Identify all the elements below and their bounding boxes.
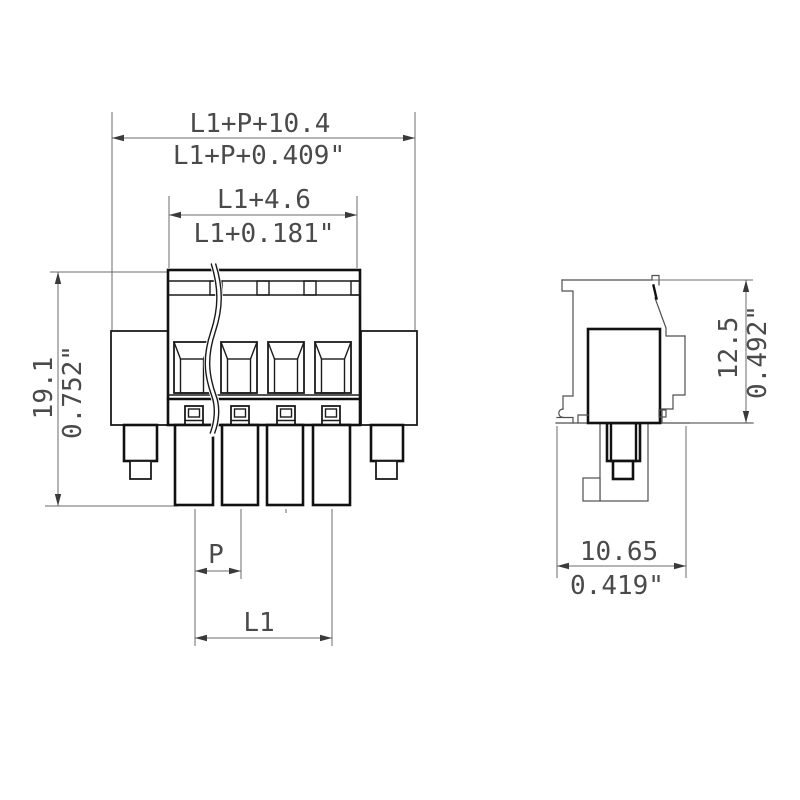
pin-3 — [267, 425, 303, 505]
side-view: 12.5 0.492" 10.65 0.419" — [556, 276, 773, 602]
dim-length: L1 — [195, 509, 332, 646]
dim-inner-width-inch-label: L1+0.181" — [194, 219, 335, 249]
dim-length-label: L1 — [243, 608, 274, 638]
funnel-outer — [268, 342, 304, 393]
funnel-3 — [268, 342, 304, 393]
latch-mark — [654, 286, 657, 299]
arrowhead-left — [195, 568, 207, 574]
pin-1 — [175, 425, 213, 505]
mounting-foot — [371, 425, 403, 461]
arrowhead-right — [320, 635, 332, 641]
left-wall — [562, 280, 573, 409]
drawing-canvas: L1+P+10.4 L1+P+0.409" L1+4.6 L1+0.181" 1… — [0, 0, 800, 800]
clamp-window-1 — [185, 406, 203, 425]
funnel-4 — [315, 342, 351, 393]
funnel-2 — [221, 342, 257, 393]
arrowhead-right — [345, 212, 357, 218]
clamp-window-2 — [231, 406, 249, 425]
pin-4 — [313, 425, 350, 505]
arrowhead-top — [743, 280, 749, 292]
dim-inner-width: L1+4.6 L1+0.181" — [169, 185, 357, 268]
clamp-window-3 — [277, 406, 295, 425]
mounting-foot-tip — [376, 461, 397, 479]
front-view: L1+P+10.4 L1+P+0.409" L1+4.6 L1+0.181" 1… — [29, 109, 417, 646]
dim-inner-width-mm-label: L1+4.6 — [217, 185, 311, 215]
plug-body — [578, 286, 666, 424]
dim-side-height-mm-label: 12.5 — [714, 317, 744, 380]
dim-overall-width-mm-label: L1+P+10.4 — [190, 109, 331, 139]
funnel-outer — [315, 342, 351, 393]
arrowhead-right — [674, 563, 686, 569]
side-lower-housing — [583, 423, 648, 501]
arrowhead-right — [403, 135, 415, 141]
dim-side-height-inch-label: 0.492" — [743, 305, 773, 399]
pin-2 — [222, 425, 258, 505]
plug-step — [578, 415, 588, 423]
arrowhead-left — [195, 635, 207, 641]
arrowhead-left — [169, 212, 181, 218]
mounting-foot-tip — [130, 461, 151, 479]
arrowhead-bottom — [55, 494, 61, 506]
dim-side-height: 12.5 0.492" — [652, 280, 773, 423]
left-hook — [559, 409, 563, 417]
dim-front-height-mm-label: 19.1 — [29, 357, 59, 420]
flange-body — [111, 331, 168, 425]
clamp-window-4 — [322, 406, 340, 425]
side-tab — [583, 478, 600, 501]
dim-pitch-label: P — [208, 540, 224, 570]
solder-pin-tip — [613, 461, 633, 479]
solder-pins — [175, 425, 350, 505]
arrowhead-left — [112, 135, 124, 141]
technical-drawing: L1+P+10.4 L1+P+0.409" L1+4.6 L1+0.181" 1… — [0, 0, 800, 800]
mounting-foot — [124, 425, 157, 461]
dim-side-width-inch-label: 0.419" — [570, 571, 664, 601]
dim-overall-width-inch-label: L1+P+0.409" — [173, 141, 345, 171]
plug-outline — [588, 329, 660, 423]
arrowhead-bottom — [743, 411, 749, 423]
left-ledge — [557, 418, 573, 424]
arrowhead-top — [55, 272, 61, 284]
funnel-outer — [221, 342, 257, 393]
arrowhead-right — [229, 568, 241, 574]
dim-side-width-mm-label: 10.65 — [580, 537, 658, 567]
dim-front-height-inch-label: 0.752" — [58, 345, 88, 439]
flange-left — [111, 331, 168, 479]
arrowhead-left — [557, 563, 569, 569]
flange-right — [361, 331, 417, 479]
flange-body — [361, 331, 417, 425]
